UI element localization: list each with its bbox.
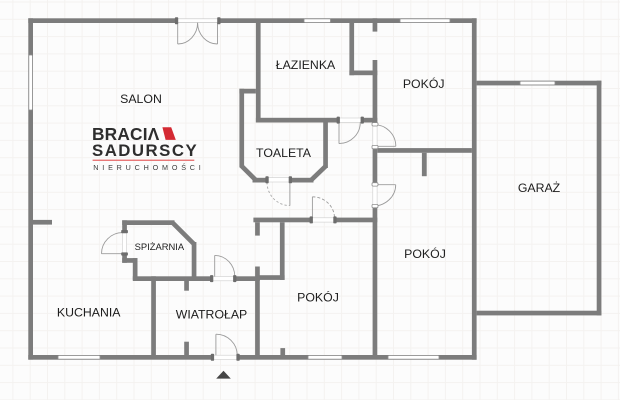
svg-text:POKÓJ: POKÓJ [403,76,445,91]
svg-text:SADURSCY: SADURSCY [92,141,198,160]
svg-text:GARAŻ: GARAŻ [518,181,561,195]
svg-text:SALON: SALON [120,92,162,106]
svg-text:POKÓJ: POKÓJ [404,246,446,261]
svg-text:POKÓJ: POKÓJ [297,290,339,305]
svg-text:SPIŻARNIA: SPIŻARNIA [135,241,185,252]
svg-text:WIATROŁAP: WIATROŁAP [176,308,248,322]
svg-text:KUCHANIA: KUCHANIA [57,306,121,320]
svg-text:ŁAZIENKA: ŁAZIENKA [276,58,336,72]
svg-text:NIERUCHOMOŚCI: NIERUCHOMOŚCI [93,163,204,172]
svg-text:TOALETA: TOALETA [256,146,312,160]
